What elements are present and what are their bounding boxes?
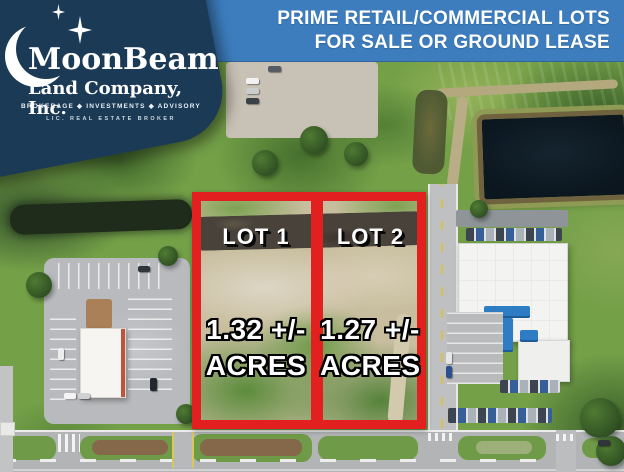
lot1-label: LOT 1 (201, 224, 311, 250)
car (246, 88, 259, 94)
aerial-grass-median (192, 434, 312, 462)
car (598, 440, 610, 446)
company-logo: MoonBeam Land Company, Inc. BROKERAGE ◆ … (0, 0, 215, 150)
listing-flyer: LOT 1 LOT 2 1.32 +/- ACRES 1.27 +/- ACRE… (0, 0, 624, 472)
aerial-grass-median (458, 436, 546, 460)
headline-line-1: PRIME RETAIL/COMMERCIAL LOTS (277, 7, 610, 31)
tree-icon (300, 126, 328, 154)
aerial-small-structure (0, 422, 15, 436)
sparkle-star-icon (52, 4, 65, 20)
tree-icon (344, 142, 368, 166)
car (64, 393, 76, 399)
lot1-acreage: 1.32 +/- ACRES (198, 312, 314, 384)
aerial-parking-stalls (128, 298, 172, 390)
aerial-lane-markings (0, 459, 624, 462)
car (138, 266, 150, 272)
aerial-dealership-wing (518, 340, 570, 382)
tree-icon (252, 150, 278, 176)
tree-icon (158, 246, 178, 266)
aerial-marsh-ditch (412, 89, 448, 175)
aerial-grass-median (6, 436, 56, 460)
headline-line-2: FOR SALE OR GROUND LEASE (315, 31, 610, 55)
car (246, 78, 259, 84)
aerial-restaurant-building (80, 328, 126, 398)
aerial-crosswalk (556, 434, 576, 441)
aerial-sidewalk (0, 430, 624, 432)
aerial-crosswalk (428, 433, 454, 441)
aerial-parked-cars (466, 228, 562, 241)
lot1-acreage-value: 1.32 +/- (198, 312, 314, 348)
car (78, 393, 90, 399)
aerial-main-road (0, 430, 624, 472)
aerial-parked-cars (448, 408, 552, 423)
company-suffix: Land Company, Inc. (28, 79, 210, 119)
tree-icon (26, 272, 52, 298)
tree-icon (580, 398, 620, 438)
aerial-road-shoulder (0, 366, 13, 472)
company-name: MoonBeam (28, 44, 210, 76)
aerial-dealership-parking (447, 312, 503, 384)
car (446, 352, 452, 364)
company-license: LIC. REAL ESTATE BROKER (16, 116, 206, 122)
aerial-lane-markings (0, 469, 624, 471)
lot2-acreage: 1.27 +/- ACRES (320, 312, 420, 384)
car (246, 98, 259, 104)
lot2-label: LOT 2 (323, 224, 418, 250)
car (58, 348, 64, 360)
aerial-parked-cars (500, 380, 560, 393)
company-tagline: BROKERAGE ◆ INVESTMENTS ◆ ADVISORY (16, 102, 206, 110)
aerial-grass-median (318, 436, 418, 460)
aerial-grass-median (80, 436, 180, 460)
tree-icon (470, 200, 488, 218)
aerial-blue-awning (520, 330, 538, 342)
aerial-driveway (172, 432, 194, 468)
car (268, 66, 281, 72)
car (150, 378, 157, 391)
aerial-crosswalk (58, 434, 80, 452)
aerial-retention-pond (476, 109, 624, 204)
lot1-acreage-unit: ACRES (198, 348, 314, 384)
aerial-creek (10, 199, 193, 235)
lots-divider (311, 192, 323, 429)
lot2-acreage-value: 1.27 +/- (320, 312, 420, 348)
aerial-restaurant-patio (86, 299, 112, 329)
lot2-acreage-unit: ACRES (320, 348, 420, 384)
car (446, 366, 452, 378)
